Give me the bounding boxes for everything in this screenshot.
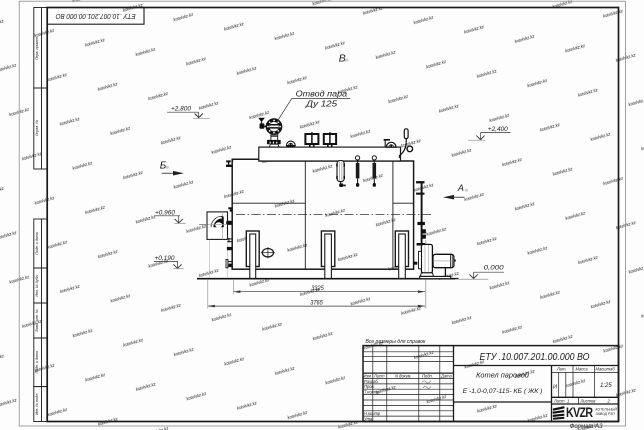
svg-text:ЕТУ .10.007.201.00.000 ВО: ЕТУ .10.007.201.00.000 ВО bbox=[55, 12, 135, 21]
svg-text:0,000: 0,000 bbox=[484, 264, 505, 271]
svg-text:Дата: Дата bbox=[440, 373, 453, 378]
svg-text:1: 1 bbox=[567, 399, 569, 404]
svg-text:+0,960: +0,960 bbox=[155, 209, 175, 216]
svg-text:Н.контр: Н.контр bbox=[364, 411, 381, 416]
svg-text:Подп. и дата: Подп. и дата bbox=[35, 351, 39, 374]
svg-text:Перв. примен.: Перв. примен. bbox=[35, 36, 39, 60]
svg-text:А: А bbox=[457, 183, 464, 193]
svg-text:ЕТУ .10.007.201.00.000 ВО: ЕТУ .10.007.201.00.000 ВО bbox=[480, 352, 590, 363]
svg-text:Подп.: Подп. bbox=[422, 373, 433, 378]
svg-text:+0,190: +0,190 bbox=[155, 255, 175, 262]
svg-text:КОТЕЛЬНЫЙ: КОТЕЛЬНЫЙ bbox=[596, 407, 618, 411]
svg-text:3765: 3765 bbox=[310, 299, 323, 306]
svg-text:ЗАВОД РЗП: ЗАВОД РЗП bbox=[596, 412, 616, 416]
svg-text:Формат А3: Формат А3 bbox=[570, 424, 603, 430]
svg-text:1:25: 1:25 bbox=[600, 383, 612, 389]
svg-text:Ду 125: Ду 125 bbox=[305, 98, 337, 108]
svg-text:Лит.: Лит. bbox=[556, 367, 567, 372]
svg-text:Т.контр: Т.контр bbox=[364, 390, 380, 395]
svg-text:В: В bbox=[339, 53, 346, 65]
svg-text:И: И bbox=[553, 385, 557, 391]
svg-text:Пров.: Пров. bbox=[364, 384, 375, 389]
svg-text:Б: Б bbox=[160, 160, 167, 171]
svg-text:Отвод пара: Отвод пара bbox=[296, 89, 348, 99]
svg-text:Инв. № дубл.: Инв. № дубл. bbox=[35, 274, 39, 296]
svg-text:Подп. и дата: Подп. и дата bbox=[35, 232, 39, 255]
svg-text:Масштаб: Масштаб bbox=[596, 367, 616, 372]
svg-text:Утв.: Утв. bbox=[364, 416, 373, 421]
svg-text:3325: 3325 bbox=[311, 285, 324, 292]
svg-text:Все размеры для справок: Все размеры для справок bbox=[366, 339, 427, 345]
svg-text:Разраб.: Разраб. bbox=[364, 379, 379, 384]
svg-text:Лист: Лист bbox=[373, 373, 385, 378]
svg-text:Котел паровой: Котел паровой bbox=[476, 370, 529, 379]
svg-text:KVZR: KVZR bbox=[566, 404, 593, 420]
svg-text:Листов: Листов bbox=[580, 399, 597, 404]
svg-text:Масса: Масса bbox=[576, 367, 589, 372]
svg-text:Лист: Лист bbox=[553, 399, 565, 404]
svg-text:Е -1,0-0,07-115- КБ ( ЖК ): Е -1,0-0,07-115- КБ ( ЖК ) bbox=[463, 388, 543, 395]
svg-text:Взам. инв. №: Взам. инв. № bbox=[35, 309, 39, 331]
svg-text:+2,800: +2,800 bbox=[171, 106, 191, 113]
svg-text:+2,400: +2,400 bbox=[488, 126, 508, 133]
svg-text:N докум.: N докум. bbox=[395, 373, 412, 378]
svg-text:Инв. № подл.: Инв. № подл. bbox=[35, 393, 39, 415]
svg-text:Изм: Изм bbox=[364, 373, 372, 378]
svg-text:Справ. №: Справ. № bbox=[35, 120, 39, 136]
